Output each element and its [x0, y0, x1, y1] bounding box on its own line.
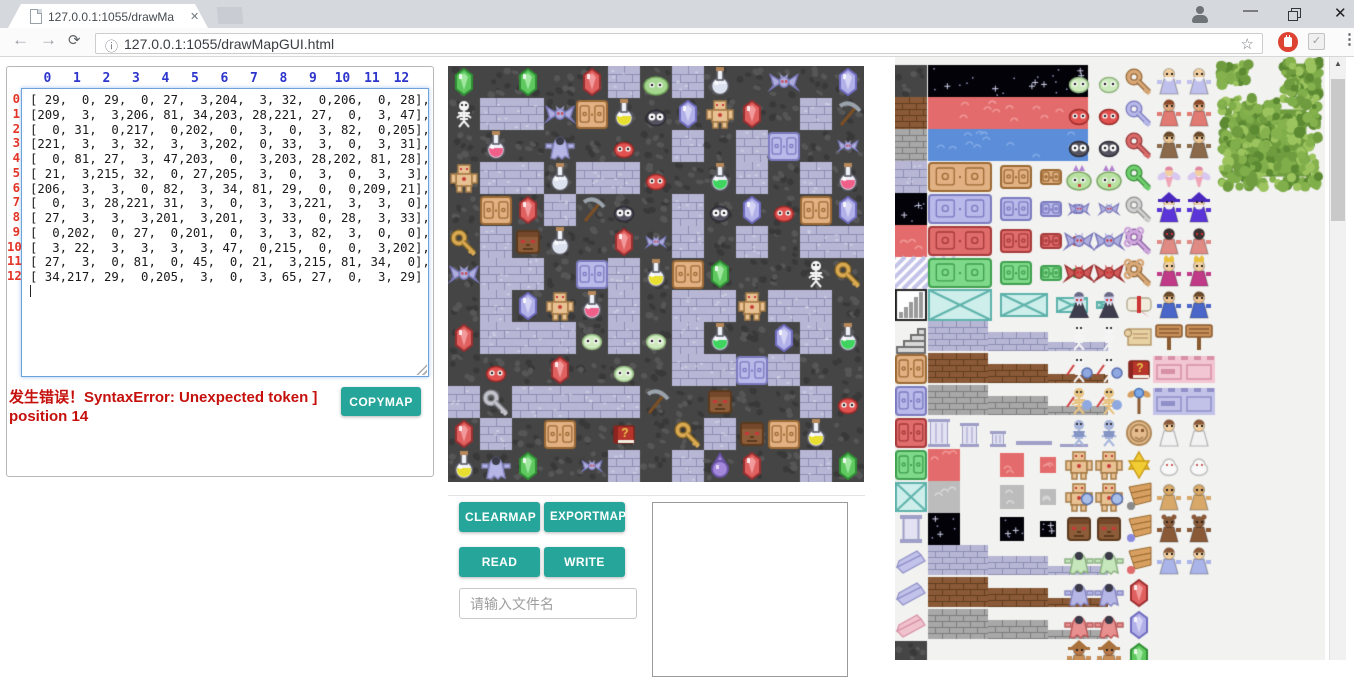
matrix-column-header: 3	[132, 71, 140, 86]
matrix-row-header: 12	[7, 269, 20, 284]
matrix-row-header: 11	[7, 254, 20, 269]
textarea-resize-grip[interactable]	[416, 364, 427, 375]
forward-icon[interactable]: →	[40, 30, 57, 50]
tab-title: 127.0.0.1:1055/drawMa	[48, 10, 174, 24]
scrollbar-thumb[interactable]	[1331, 79, 1345, 221]
browser-tab-strip: 127.0.0.1:1055/drawMa ✕ — ✕	[0, 0, 1354, 28]
bookmark-star-icon[interactable]: ☆	[1241, 35, 1254, 53]
new-tab-button[interactable]	[211, 7, 249, 24]
error-message: 发生错误！SyntaxError: Unexpected token ] pos…	[9, 389, 345, 427]
map-matrix-textarea[interactable]: [ 29, 0, 29, 0, 27, 3,204, 3, 32, 0,206,…	[21, 88, 429, 377]
matrix-row-header: 6	[7, 181, 20, 196]
browser-tab[interactable]: 127.0.0.1:1055/drawMa ✕	[8, 4, 208, 28]
matrix-column-header: 8	[279, 71, 287, 86]
minimize-button[interactable]: —	[1243, 2, 1258, 19]
exportmap-button[interactable]: EXPORTMAP	[544, 502, 625, 532]
matrix-column-header: 1	[73, 71, 81, 86]
clearmap-button[interactable]: CLEARMAP	[459, 502, 540, 532]
matrix-column-header: 9	[309, 71, 317, 86]
matrix-row-header: 0	[7, 92, 20, 107]
matrix-row-header: 5	[7, 166, 20, 181]
matrix-row-header: 2	[7, 122, 20, 137]
matrix-column-header: 11	[364, 71, 380, 86]
tab-close-icon[interactable]: ✕	[190, 10, 199, 23]
profile-icon[interactable]	[1190, 4, 1210, 24]
restore-button[interactable]	[1288, 8, 1301, 21]
write-button[interactable]: WRITE	[544, 547, 625, 577]
matrix-column-header: 6	[220, 71, 228, 86]
matrix-row-header: 3	[7, 136, 20, 151]
export-output-box[interactable]	[652, 502, 848, 677]
matrix-row-header: 7	[7, 195, 20, 210]
read-button[interactable]: READ	[459, 547, 540, 577]
matrix-column-header: 10	[335, 71, 351, 86]
tileset-palette-canvas[interactable]	[895, 57, 1325, 660]
address-bar[interactable]: ⓘ 127.0.0.1:1055/drawMapGUI.html ☆	[95, 33, 1263, 54]
close-window-button[interactable]: ✕	[1334, 4, 1347, 22]
page-favicon-icon	[30, 9, 42, 24]
divider	[448, 495, 865, 496]
matrix-column-header: 7	[250, 71, 258, 86]
url-text[interactable]: 127.0.0.1:1055/drawMapGUI.html	[124, 36, 334, 52]
matrix-text: [ 29, 0, 29, 0, 27, 3,204, 3, 32, 0,206,…	[30, 93, 430, 285]
matrix-row-header: 4	[7, 151, 20, 166]
browser-toolbar: ← → ⟳ ⓘ 127.0.0.1:1055/drawMapGUI.html ☆…	[0, 28, 1354, 57]
matrix-column-header: 5	[191, 71, 199, 86]
matrix-row-header: 9	[7, 225, 20, 240]
checkbox-extension-icon[interactable]: ✓	[1308, 33, 1325, 50]
text-caret	[30, 285, 31, 297]
scrollbar-up-icon[interactable]: ▲	[1330, 57, 1346, 71]
copymap-button[interactable]: COPYMAP	[341, 387, 421, 416]
filename-input[interactable]	[459, 588, 637, 619]
reload-icon[interactable]: ⟳	[68, 31, 81, 49]
page-info-icon[interactable]: ⓘ	[105, 36, 118, 55]
matrix-row-header: 1	[7, 107, 20, 122]
matrix-column-header: 12	[394, 71, 410, 86]
page-scrollbar[interactable]: ▲	[1329, 57, 1346, 660]
matrix-row-header: 8	[7, 210, 20, 225]
browser-menu-icon[interactable]: ⋮	[1342, 30, 1354, 48]
matrix-column-header: 2	[102, 71, 110, 86]
matrix-panel: [ 29, 0, 29, 0, 27, 3,204, 3, 32, 0,206,…	[6, 66, 434, 477]
adblock-extension-icon[interactable]	[1278, 32, 1298, 52]
map-canvas[interactable]	[448, 66, 864, 482]
matrix-column-header: 0	[43, 71, 51, 86]
matrix-column-header: 4	[161, 71, 169, 86]
matrix-row-header: 10	[7, 240, 20, 255]
back-icon[interactable]: ←	[12, 30, 29, 50]
